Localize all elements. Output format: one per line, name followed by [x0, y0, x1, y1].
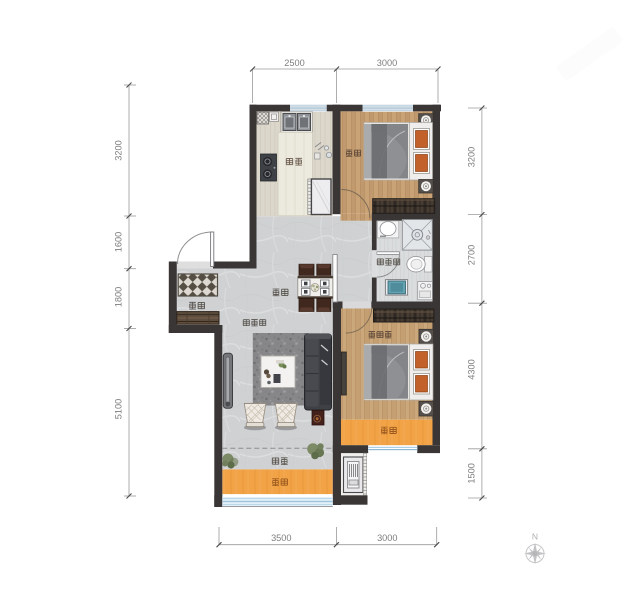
svg-text:3000: 3000: [377, 533, 397, 543]
svg-text:3200: 3200: [114, 140, 124, 160]
svg-text:N: N: [532, 532, 538, 542]
svg-text:4300: 4300: [467, 359, 477, 379]
svg-text:2500: 2500: [284, 58, 304, 68]
svg-text:1800: 1800: [114, 287, 124, 307]
svg-text:3000: 3000: [377, 58, 397, 68]
svg-text:5100: 5100: [114, 399, 124, 419]
svg-text:3500: 3500: [271, 533, 291, 543]
svg-text:3200: 3200: [467, 147, 477, 167]
svg-text:1500: 1500: [467, 463, 477, 483]
svg-text:1600: 1600: [114, 232, 124, 252]
svg-text:2700: 2700: [467, 245, 477, 265]
